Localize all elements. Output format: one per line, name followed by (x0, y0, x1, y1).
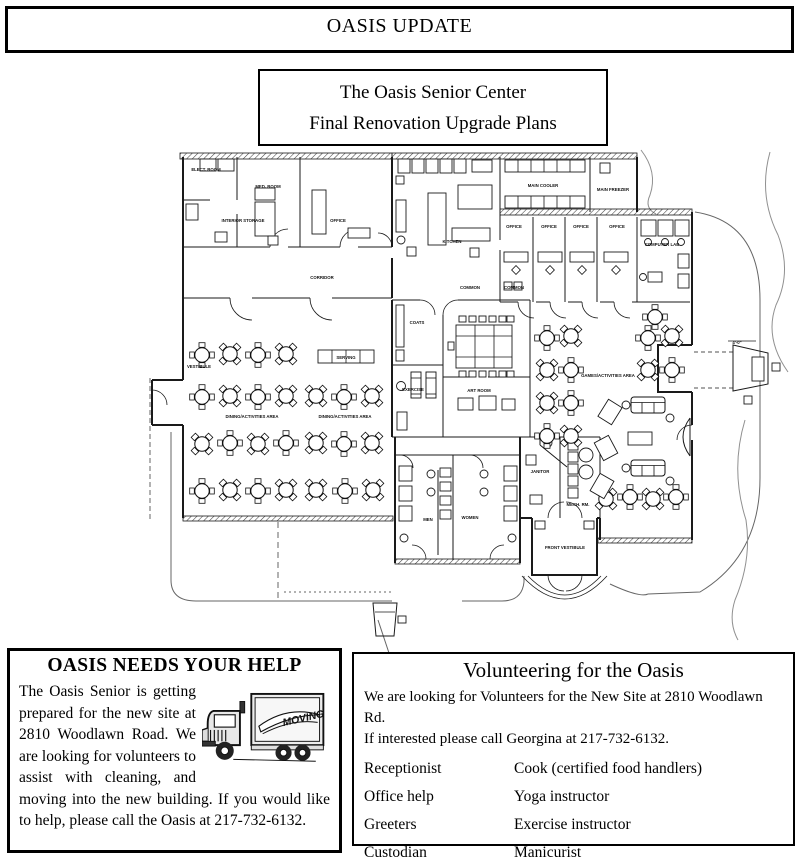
role-item: Office help (364, 786, 514, 807)
room-label: OFFICE (573, 224, 589, 229)
role-item: Custodian (364, 842, 514, 861)
room-label: COMMON (504, 285, 524, 290)
plan-title-box: The Oasis Senior Center Final Renovation… (258, 69, 608, 146)
masthead-box: OASIS UPDATE (5, 6, 794, 53)
room-label: COATS (410, 320, 425, 325)
room-label: ELECT. ROOM (191, 167, 221, 172)
east-entry (694, 341, 780, 404)
room-label: OFFICE (506, 224, 522, 229)
room-label: COMMON (460, 285, 480, 290)
room-label: MAIN COOLER (528, 183, 559, 188)
conference-room (448, 316, 514, 377)
room-label: EXERCISE (402, 387, 424, 392)
front-vestibule (535, 521, 594, 529)
newsletter-page: OASIS UPDATE The Oasis Senior Center Fin… (0, 0, 800, 861)
plan-title-line2: Final Renovation Upgrade Plans (260, 108, 606, 139)
volunteer-box: Volunteering for the Oasis We are lookin… (352, 652, 795, 846)
help-title: OASIS NEEDS YOUR HELP (19, 655, 330, 677)
volunteer-title: Volunteering for the Oasis (364, 658, 783, 683)
room-label: OFFICE (609, 224, 625, 229)
entry-canopy (522, 576, 607, 599)
room-label: COMPUTER LAB (645, 242, 680, 247)
room-label: ART ROOM (467, 388, 491, 393)
room-label: OFFICE (541, 224, 557, 229)
role-item: Manicurist (514, 842, 783, 861)
lounge-furniture (590, 397, 690, 499)
room-label: 4'-0" (732, 340, 741, 345)
role-item: Cook (certified food handlers) (514, 758, 783, 779)
room-label: MED. ROOM (255, 184, 281, 189)
room-label: WOMEN (462, 515, 479, 520)
room-label: KITCHEN (442, 239, 461, 244)
page-title: OASIS UPDATE (327, 15, 472, 38)
restrooms (399, 466, 517, 559)
room-label: OFFICE (330, 218, 346, 223)
floor-plan: ELECT. ROOMMED. ROOMINTERIOR STORAGEOFFI… (0, 140, 800, 655)
help-box: OASIS NEEDS YOUR HELP MOVING The Oasis S… (7, 648, 342, 853)
role-item: Receptionist (364, 758, 514, 779)
role-item: Exercise instructor (514, 814, 783, 835)
volunteer-intro: We are looking for Volunteers for the Ne… (364, 687, 783, 750)
room-label: DINING/ACTIVITIES AREA (225, 414, 278, 419)
room-label: INTERIOR STORAGE (222, 218, 265, 223)
room-label: VESTIBULE (187, 364, 211, 369)
art-room-tables (458, 396, 515, 410)
room-label: JANITOR (531, 469, 551, 474)
room-label: DINING/ACTIVITIES AREA (318, 414, 371, 419)
room-label: SERVING (336, 355, 356, 360)
room-label: CORRIDOR (310, 275, 334, 280)
rear-stoop (373, 603, 406, 636)
room-label: MEN (423, 517, 433, 522)
room-label: FRONT VESTIBULE (545, 545, 585, 550)
plan-title-line1: The Oasis Senior Center (260, 77, 606, 108)
moving-truck-image: MOVING (202, 685, 330, 773)
role-item: Yoga instructor (514, 786, 783, 807)
computer-lab-furniture (640, 220, 690, 288)
volunteer-roles-list: Receptionist Cook (certified food handle… (364, 758, 783, 861)
room-label: MECH. RM. (567, 502, 590, 507)
room-label: MAIN FREEZER (597, 187, 630, 192)
role-item: Greeters (364, 814, 514, 835)
room-label: GAMES/ACTIVITIES AREA (581, 373, 635, 378)
